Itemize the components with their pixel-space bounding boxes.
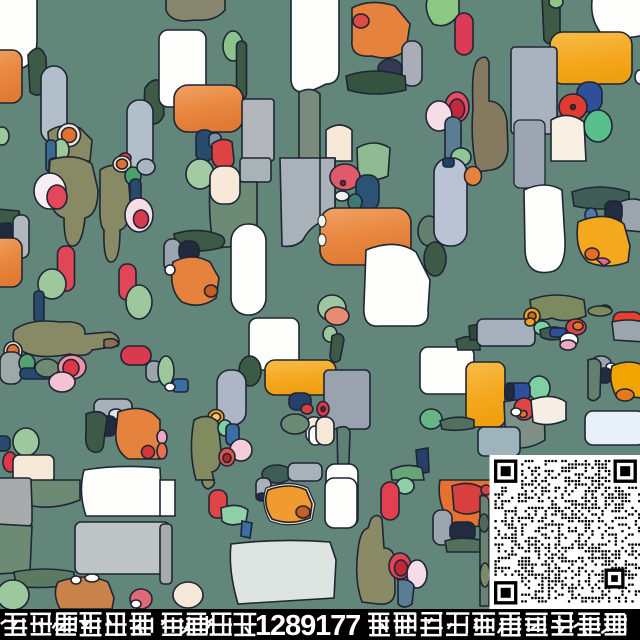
svg-text:1289177: 1289177 bbox=[255, 610, 360, 640]
